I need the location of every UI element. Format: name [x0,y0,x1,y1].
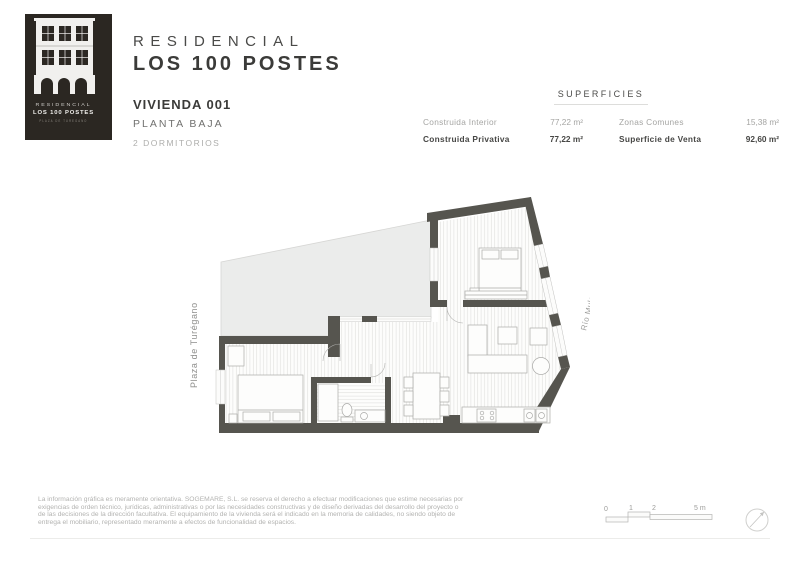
area-label: Zonas Comunes [619,117,684,127]
disclaimer-line: de las decisiones de la dirección facult… [38,511,554,519]
project-title: RESIDENCIAL LOS 100 POSTES [133,33,342,76]
shower [318,384,338,421]
superficies-title: SUPERFICIES [554,89,648,105]
area-label: Superficie de Venta [619,134,701,144]
area-label: Construida Privativa [423,134,510,144]
superficies-table: SUPERFICIES Construida Interior 77,22 m²… [423,84,779,144]
superficies-header: SUPERFICIES [423,84,779,105]
scale-label-1: 1 [629,505,633,512]
vanity [355,410,385,422]
project-title-line2: LOS 100 POSTES [133,53,342,76]
street-label-left: Plaza de Turégano [189,302,199,388]
logo-text-line3: PLAZA DE TUREGANO [40,119,88,123]
area-value: 15,38 m² [746,117,779,127]
project-title-line1: RESIDENCIAL [133,33,342,50]
unit-floor: PLANTA BAJA [133,118,231,130]
area-row-construida-privativa: Construida Privativa 77,22 m² [423,134,583,144]
building-icon [34,18,95,94]
unit-name: VIVIENDA 001 [133,97,231,112]
floor-plan: Plaza de Turégano Río Mulas [180,185,590,455]
street-label-right: Río Mulas [579,290,590,331]
scale-label-2: 2 [652,505,656,512]
area-value: 77,22 m² [550,134,583,144]
sofa [468,325,487,356]
disclaimer-line: entrega el mobiliario, representado mera… [38,519,554,527]
area-value: 77,22 m² [550,117,583,127]
north-indicator-icon [746,509,768,531]
scale-label-5m: 5 m [694,505,706,512]
disclaimer-line: La información gráfica es meramente orie… [38,496,554,504]
kitchen-sink [524,409,535,422]
area-row-zonas-comunes: Zonas Comunes 15,38 m² [619,117,779,127]
area-label: Construida Interior [423,117,497,127]
scale-label-0: 0 [604,506,608,513]
toilet [342,404,352,417]
scale-bar: 0 1 2 5 m [595,500,775,540]
disclaimer-line: exigencias de orden técnico, jurídicas, … [38,504,554,512]
dining-table [413,373,440,419]
unit-info: VIVIENDA 001 PLANTA BAJA 2 DORMITORIOS [133,97,231,148]
logo-text-line2: LOS 100 POSTES [33,110,94,116]
coffee-table [498,327,517,344]
area-row-construida-interior: Construida Interior 77,22 m² [423,117,583,127]
area-row-superficie-venta: Superficie de Venta 92,60 m² [619,134,779,144]
brand-logo: RESIDENCIAL LOS 100 POSTES PLAZA DE TURE… [25,14,112,140]
unit-rooms: 2 DORMITORIOS [133,138,231,148]
footer-divider [30,538,770,539]
brochure-page: RESIDENCIAL LOS 100 POSTES PLAZA DE TURE… [0,0,799,565]
legal-disclaimer: La información gráfica es meramente orie… [38,496,554,527]
patio-window-strip [339,317,431,322]
round-table [533,358,550,375]
logo-text-line1: RESIDENCIAL [36,102,92,107]
area-value: 92,60 m² [746,134,779,144]
